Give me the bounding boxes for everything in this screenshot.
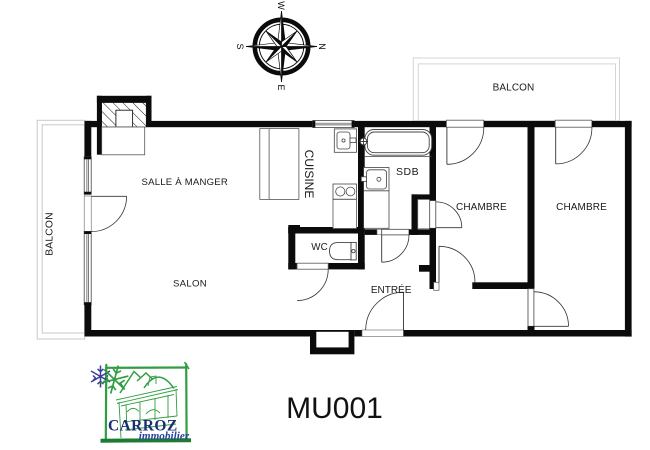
svg-text:MU001: MU001 [286,392,383,425]
svg-text:SDB: SDB [396,166,419,178]
svg-text:BALCON: BALCON [493,83,535,94]
svg-text:W: W [276,1,286,10]
svg-text:ENTRÉE: ENTRÉE [371,283,412,296]
svg-text:WC: WC [311,242,328,253]
svg-text:N: N [317,43,327,50]
svg-text:SALLE À MANGER: SALLE À MANGER [142,177,229,188]
svg-text:CHAMBRE: CHAMBRE [456,202,507,213]
svg-text:SALON: SALON [173,278,207,289]
svg-text:immobilier: immobilier [139,431,190,443]
svg-text:CHAMBRE: CHAMBRE [556,202,607,213]
svg-text:S: S [235,43,245,49]
svg-text:E: E [276,84,286,90]
svg-text:CUISINE: CUISINE [302,150,316,199]
svg-text:BALCON: BALCON [44,212,55,256]
